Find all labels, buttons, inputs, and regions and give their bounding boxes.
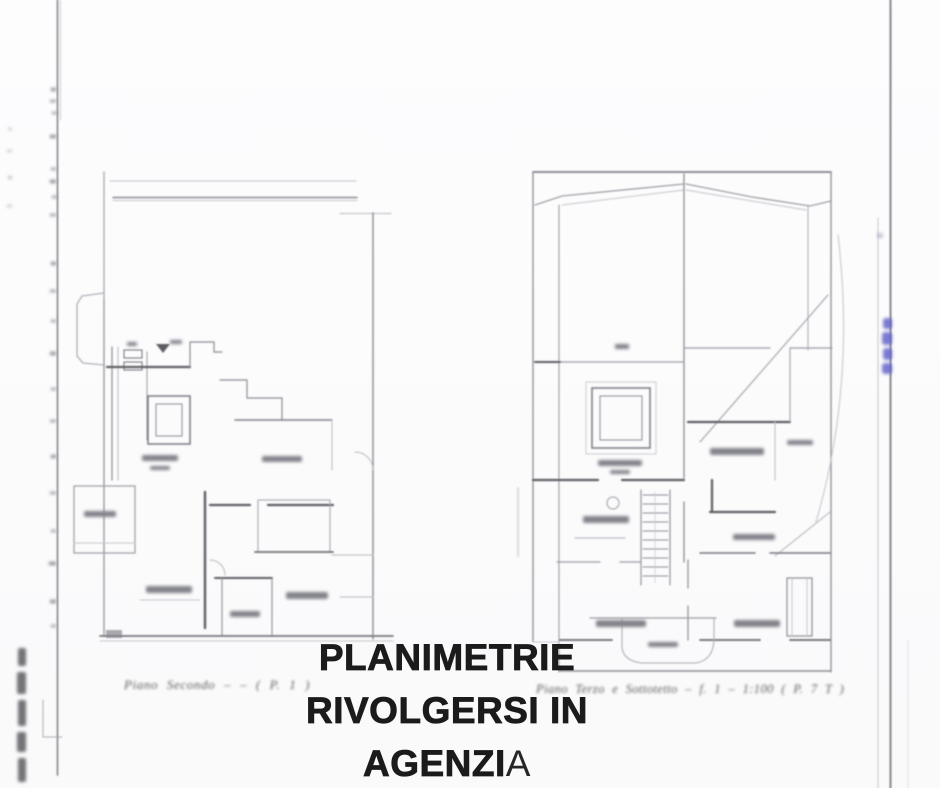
left-margin-line xyxy=(43,0,62,775)
bottom-left-stamp-text xyxy=(17,648,26,782)
scanned-floorplan-page: Piano Secondo ‒ ‒ ( P. 1 ) Piano Terzo e… xyxy=(0,0,940,788)
overlay-line-1: PLANIMETRIE xyxy=(306,631,588,684)
right-floor-plan xyxy=(518,172,844,672)
overlay-line-3-regular: A xyxy=(506,743,531,784)
page-fold-lines xyxy=(878,0,908,788)
overlay-line-3: AGENZIA xyxy=(306,737,588,788)
left-plan-caption: Piano Secondo ‒ ‒ ( P. 1 ) xyxy=(124,677,310,693)
overlay-text: PLANIMETRIE RIVOLGERSI IN AGENZIA xyxy=(306,631,588,788)
overlay-line-3-bold: AGENZI xyxy=(363,743,506,784)
right-plan-room-labels xyxy=(583,344,813,647)
left-floor-plan xyxy=(74,172,393,641)
overlay-line-2: RIVOLGERSI IN xyxy=(306,684,588,737)
left-margin-text-marks xyxy=(7,88,57,627)
